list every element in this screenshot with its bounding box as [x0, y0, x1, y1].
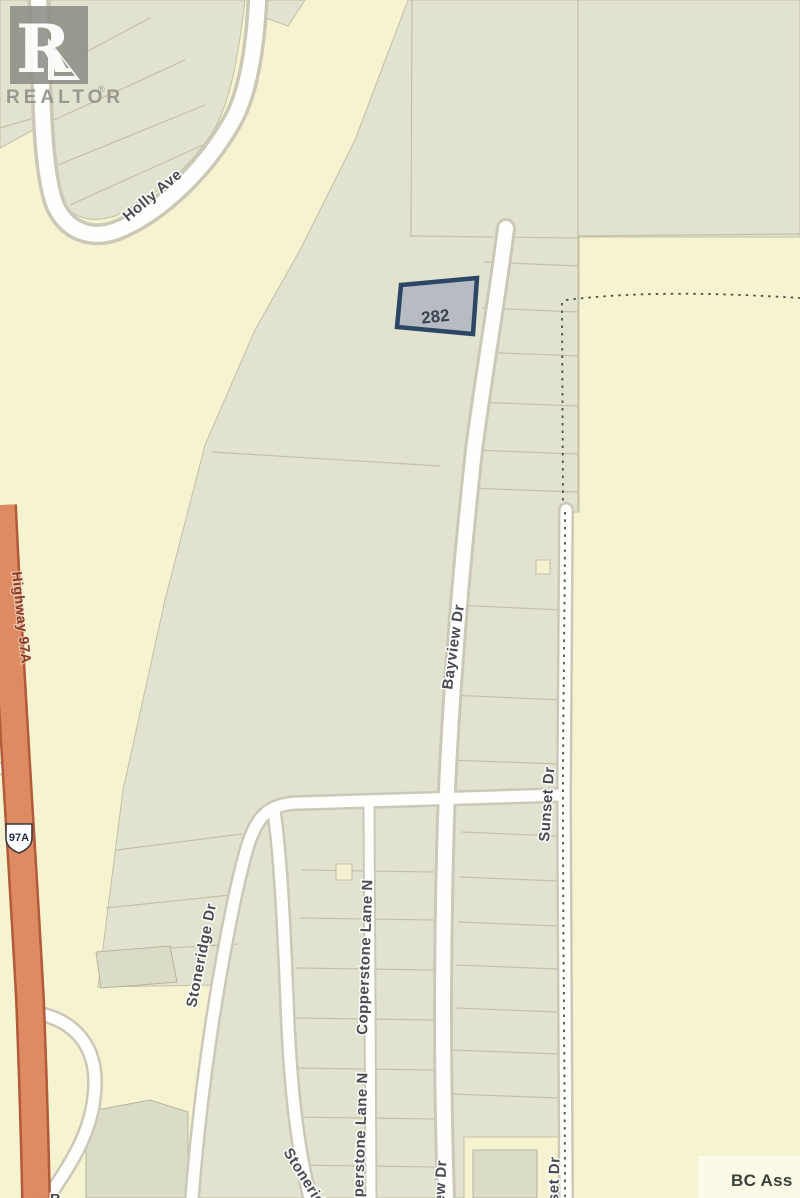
dotted-line-east — [566, 294, 800, 300]
highlighted-parcel-282: 282 — [397, 278, 477, 334]
realtor-logo-initial: R — [16, 10, 72, 88]
realtor-registered-mark: ® — [98, 84, 105, 94]
shield-text: 97A — [9, 832, 29, 844]
parcel-map-svg: 282 97A Holly Ave Highway 97A Stoneridge… — [0, 0, 800, 1198]
parcel-282-label: 282 — [420, 306, 450, 328]
realtor-logo-word: REALTOR — [6, 87, 124, 108]
building-east-bayview — [473, 1150, 537, 1198]
attribution: BC Ass — [698, 1156, 800, 1198]
street-label-partial-b: B — [50, 1191, 61, 1198]
map-canvas[interactable]: 282 97A Holly Ave Highway 97A Stoneridge… — [0, 0, 800, 1198]
building-small-copperstone — [336, 864, 352, 880]
building-small-sunset — [536, 560, 550, 574]
attribution-text: BC Ass — [731, 1171, 793, 1190]
building-west-upper — [96, 946, 177, 988]
parcel-regions — [0, 0, 800, 1198]
region-holly-ne-patch — [262, 0, 305, 26]
building-west-lower — [86, 1100, 188, 1198]
street-label-bayview-dr-south: Bayview Dr — [429, 1160, 450, 1198]
road-sunset — [564, 510, 566, 1198]
dotted-boundaries — [562, 294, 800, 510]
street-label-sunset-dr-south: Sunset Dr — [544, 1156, 564, 1198]
